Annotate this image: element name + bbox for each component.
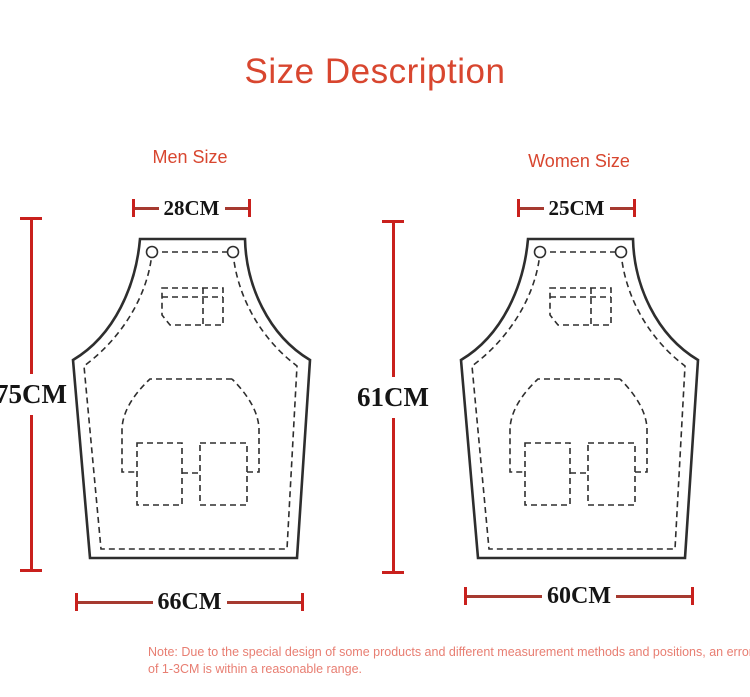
men-height-value: 75CM xyxy=(0,381,67,408)
men-apron-diagram xyxy=(66,230,318,570)
women-bottom-width-dimension: 60CM xyxy=(464,586,694,606)
men-apron-shape xyxy=(73,239,310,558)
men-bottom-width-dimension: 66CM xyxy=(75,592,304,612)
dimension-line xyxy=(616,595,691,598)
dimension-line xyxy=(78,601,153,604)
dimension-line xyxy=(227,601,302,604)
note-line-2: of 1-3CM is within a reasonable range. xyxy=(148,661,750,678)
dimension-line xyxy=(225,207,249,210)
dimension-line xyxy=(520,207,544,210)
women-top-width-value: 25CM xyxy=(549,198,605,219)
men-top-width-dimension: 28CM xyxy=(132,197,251,219)
dimension-line xyxy=(135,207,159,210)
dimension-cap xyxy=(691,587,694,605)
men-size-label: Men Size xyxy=(110,147,270,168)
dimension-line xyxy=(30,415,33,569)
dimension-cap xyxy=(633,199,636,217)
women-apron-diagram xyxy=(454,230,706,570)
dimension-line xyxy=(30,220,33,374)
dimension-line xyxy=(392,223,395,377)
note-line-1: Note: Due to the special design of some … xyxy=(148,644,750,661)
men-bottom-width-value: 66CM xyxy=(158,590,222,614)
dimension-line xyxy=(392,418,395,572)
dimension-line xyxy=(610,207,634,210)
women-apron-shape xyxy=(461,239,698,558)
dimension-line xyxy=(467,595,542,598)
dimension-cap xyxy=(382,571,404,574)
women-height-value: 61CM xyxy=(357,384,429,411)
men-height-dimension: 75CM xyxy=(20,217,42,572)
women-top-width-dimension: 25CM xyxy=(517,197,636,219)
women-size-label: Women Size xyxy=(499,151,659,172)
men-top-width-value: 28CM xyxy=(164,198,220,219)
measurement-note: Note: Due to the special design of some … xyxy=(148,644,750,678)
women-height-dimension: 61CM xyxy=(382,220,404,574)
women-bottom-width-value: 60CM xyxy=(547,584,611,608)
dimension-cap xyxy=(301,593,304,611)
page-title: Size Description xyxy=(0,52,750,92)
dimension-cap xyxy=(248,199,251,217)
dimension-cap xyxy=(20,569,42,572)
